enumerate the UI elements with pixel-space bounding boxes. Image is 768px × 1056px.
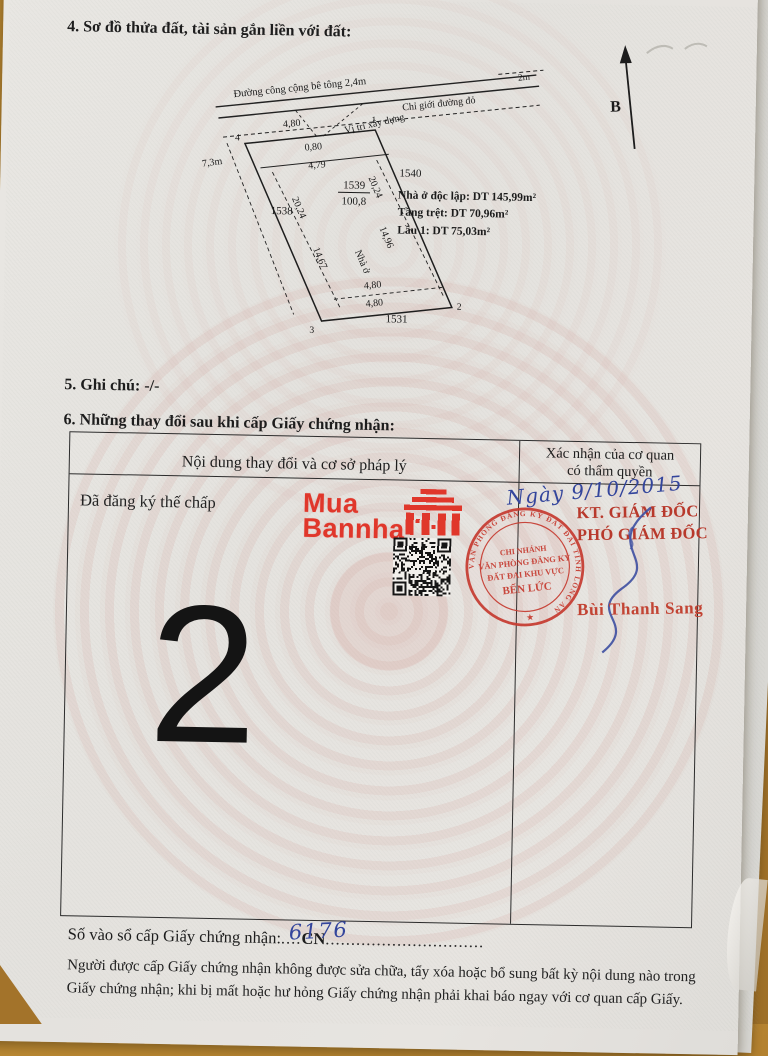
watermark-text: Mua Bannha [302, 491, 405, 543]
edge-inner-bottom-dim: 4,80 [364, 279, 382, 291]
corner-2: 2 [457, 303, 462, 313]
edge-inner-top-dim: 4,79 [308, 159, 326, 171]
house-right-dim: 14,96 [377, 225, 396, 250]
header-right-line1: Xác nhận của cơ quan [546, 445, 675, 464]
road-label: Đường công cộng bê tông 2,4m [233, 76, 367, 100]
house-left-dim: 14,67 [310, 246, 329, 271]
registry-label: Số vào sổ cấp Giấy chứng nhận: [68, 924, 282, 947]
red-boundary-label: Chỉ giới đường đỏ [402, 95, 476, 113]
signer-name: Bùi Thanh Sang [577, 598, 704, 620]
section4-heading: 4. Sơ đồ thửa đất, tài sản gắn liền với … [67, 18, 352, 41]
north-arrowhead [619, 45, 632, 63]
house-label: Nhà ở [352, 249, 372, 276]
watermark-line2: Bannha [302, 516, 404, 543]
page-number: 2 [147, 576, 256, 774]
registry-number-handwritten: 6176 [288, 918, 349, 945]
parcel-number: 1539 [343, 179, 366, 191]
setback-dim: 0,80 [304, 141, 322, 153]
house-info-line3: Lầu 1: DT 75,03m² [397, 222, 535, 242]
house-info-line2: Tầng trệt: DT 70,96m² [397, 205, 535, 225]
corner-4: 4 [235, 133, 240, 143]
registry-line: Số vào sổ cấp Giấy chứng nhận:....CN....… [68, 924, 485, 952]
left-boundary-dash [224, 143, 297, 314]
section5-heading: 5. Ghi chú: -/- [64, 376, 159, 396]
house-info: Nhà ở độc lập: DT 145,99m² Tầng trệt: DT… [397, 187, 536, 241]
fraction-bar [338, 192, 370, 193]
stamp-star: ★ [526, 612, 535, 623]
corner-3: 3 [309, 326, 314, 336]
edge-top-dim: 4,80 [283, 118, 301, 130]
adjacent-parcel-bottom: 1531 [385, 313, 407, 325]
parcel-area: 100,8 [341, 195, 366, 207]
north-arrow: B [604, 38, 662, 156]
registry-dots2: ............................... [325, 929, 484, 951]
signature [570, 496, 673, 663]
house-line-bottom [334, 285, 442, 301]
left-dim: 7,3m [201, 156, 223, 170]
road-dim-label: 2m [517, 72, 531, 83]
footer-note: Người được cấp Giấy chứng nhận không đượ… [66, 954, 697, 1011]
qr-code [392, 537, 451, 596]
edge-bottom-dim: 4,80 [365, 297, 383, 309]
north-label: B [610, 98, 622, 115]
edge-right-dim: 20,24 [366, 175, 385, 200]
page-content: 4. Sơ đồ thửa đất, tài sản gắn liền với … [0, 0, 768, 1032]
mortgage-entry-text: Đã đăng ký thế chấp [80, 490, 216, 513]
certificate-page: 4. Sơ đồ thửa đất, tài sản gắn liền với … [0, 0, 758, 1055]
adjacent-parcel-right: 1540 [399, 167, 422, 179]
